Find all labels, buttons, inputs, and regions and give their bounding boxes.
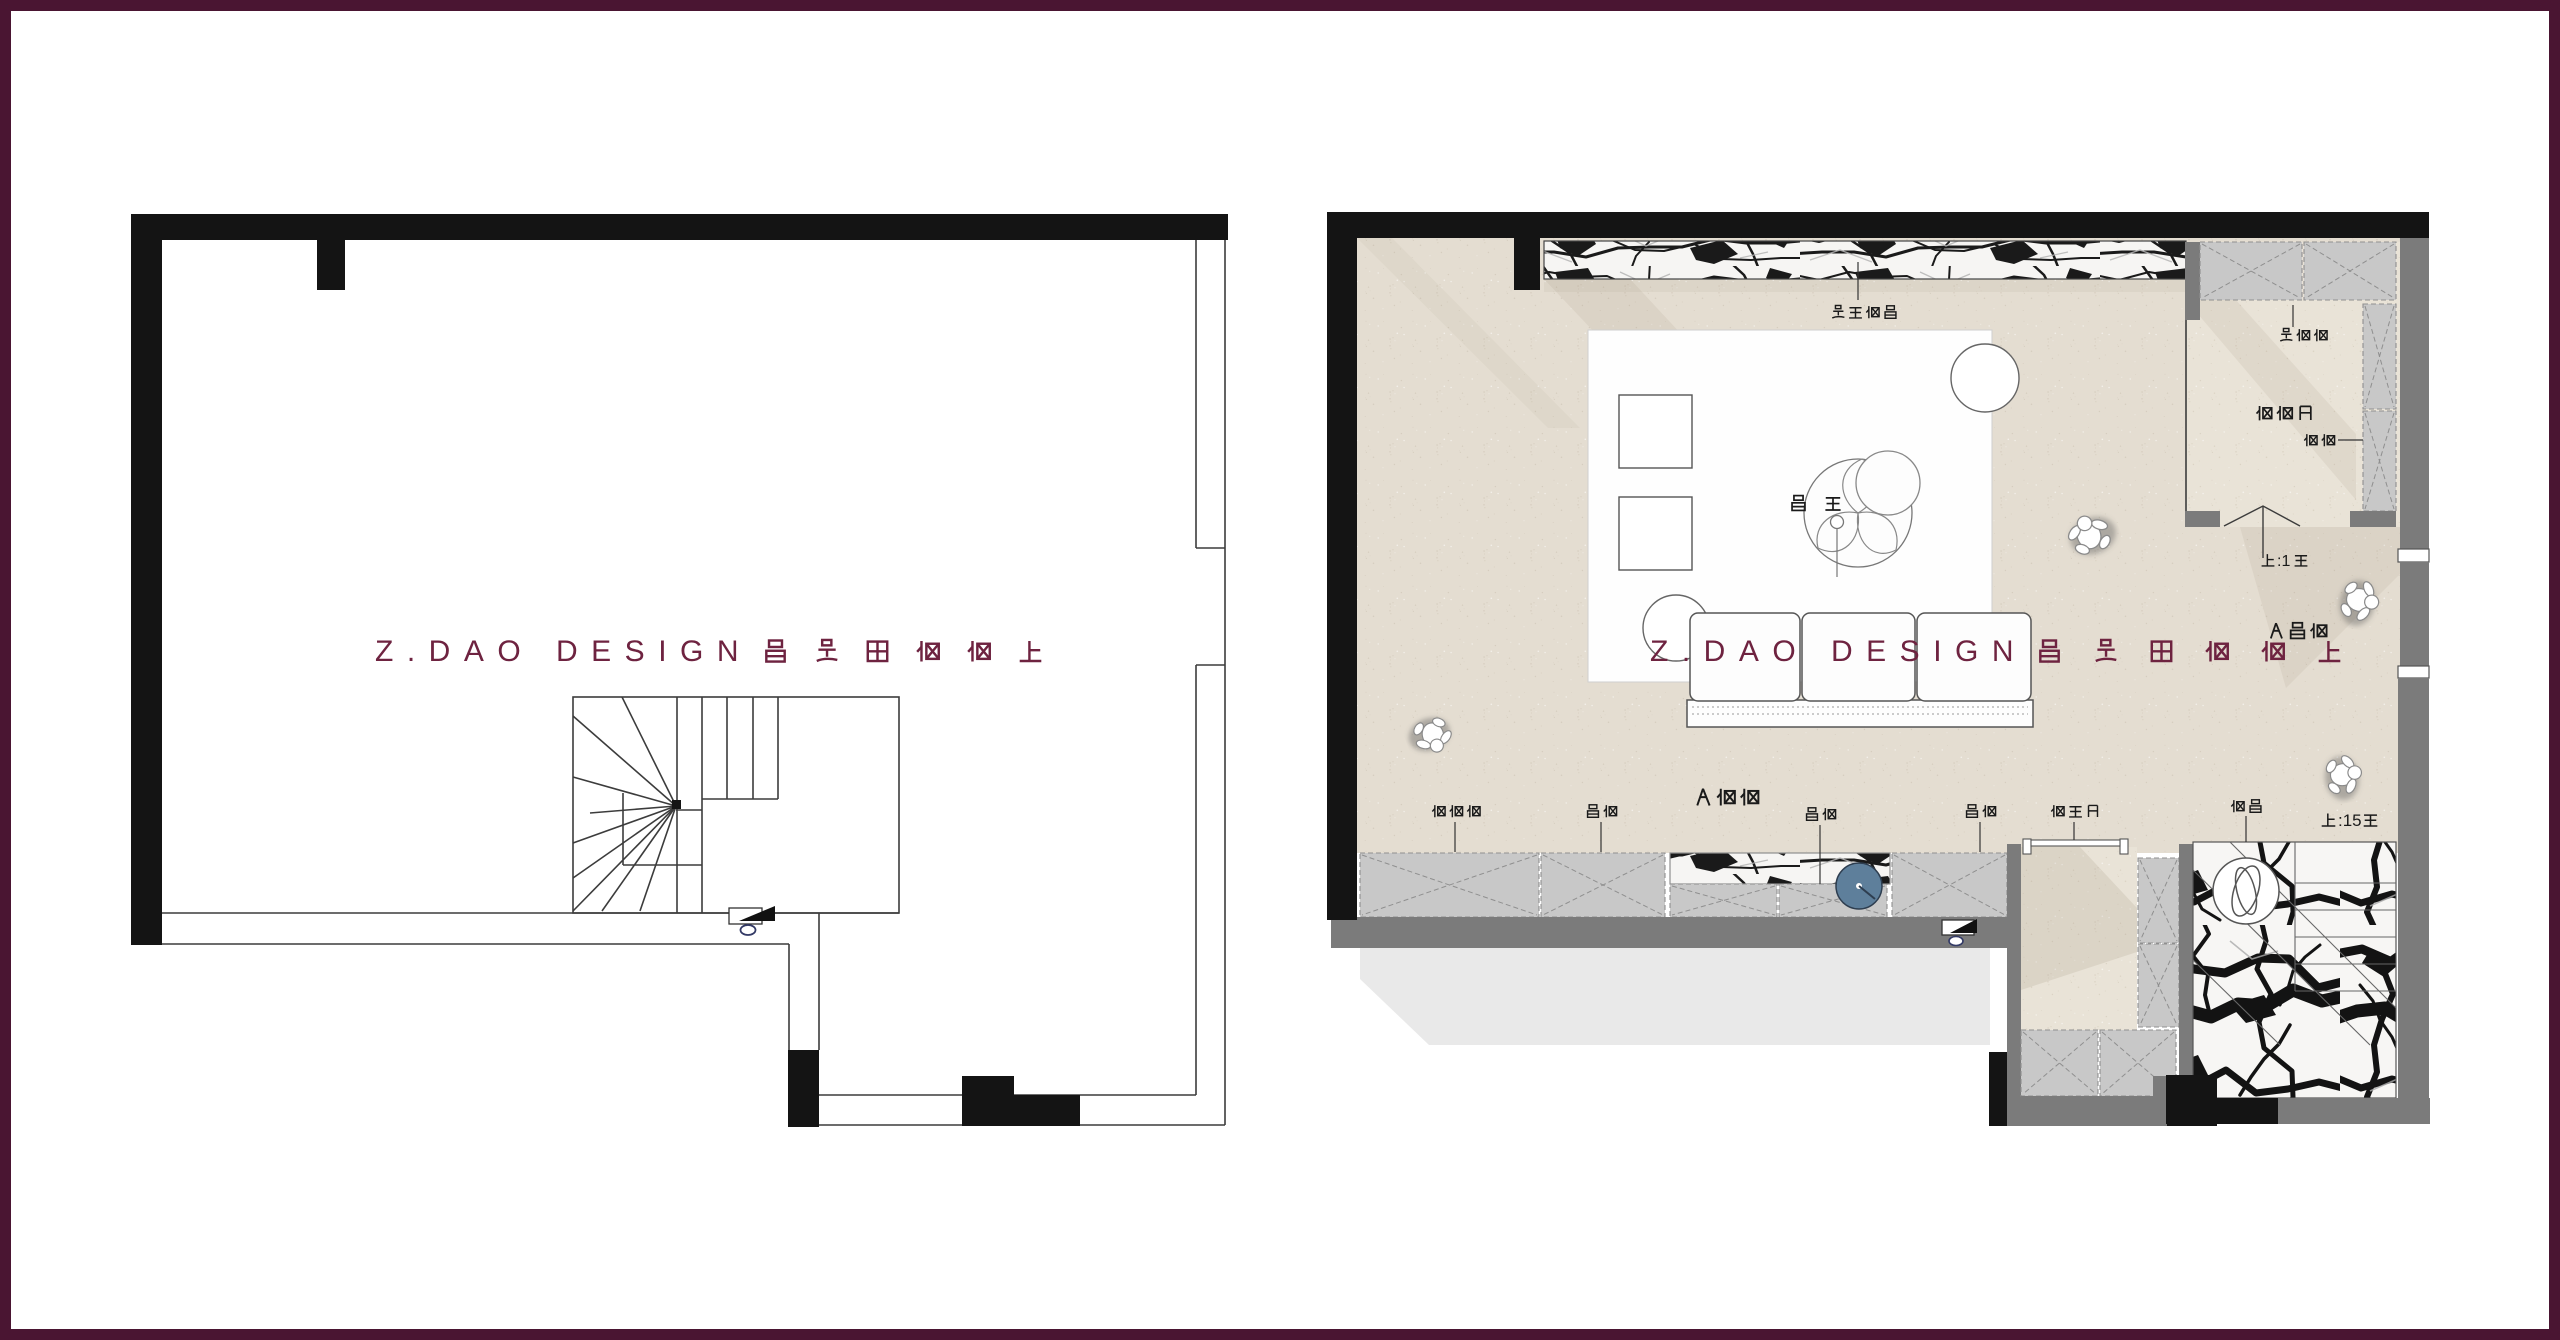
svg-text:Z.DAO DESIGN: Z.DAO DESIGN	[375, 635, 752, 668]
svg-text:Z.DAO DESIGN: Z.DAO DESIGN	[1650, 635, 2027, 668]
svg-text::15: :15	[2338, 811, 2362, 830]
svg-text::1: :1	[2277, 553, 2290, 570]
